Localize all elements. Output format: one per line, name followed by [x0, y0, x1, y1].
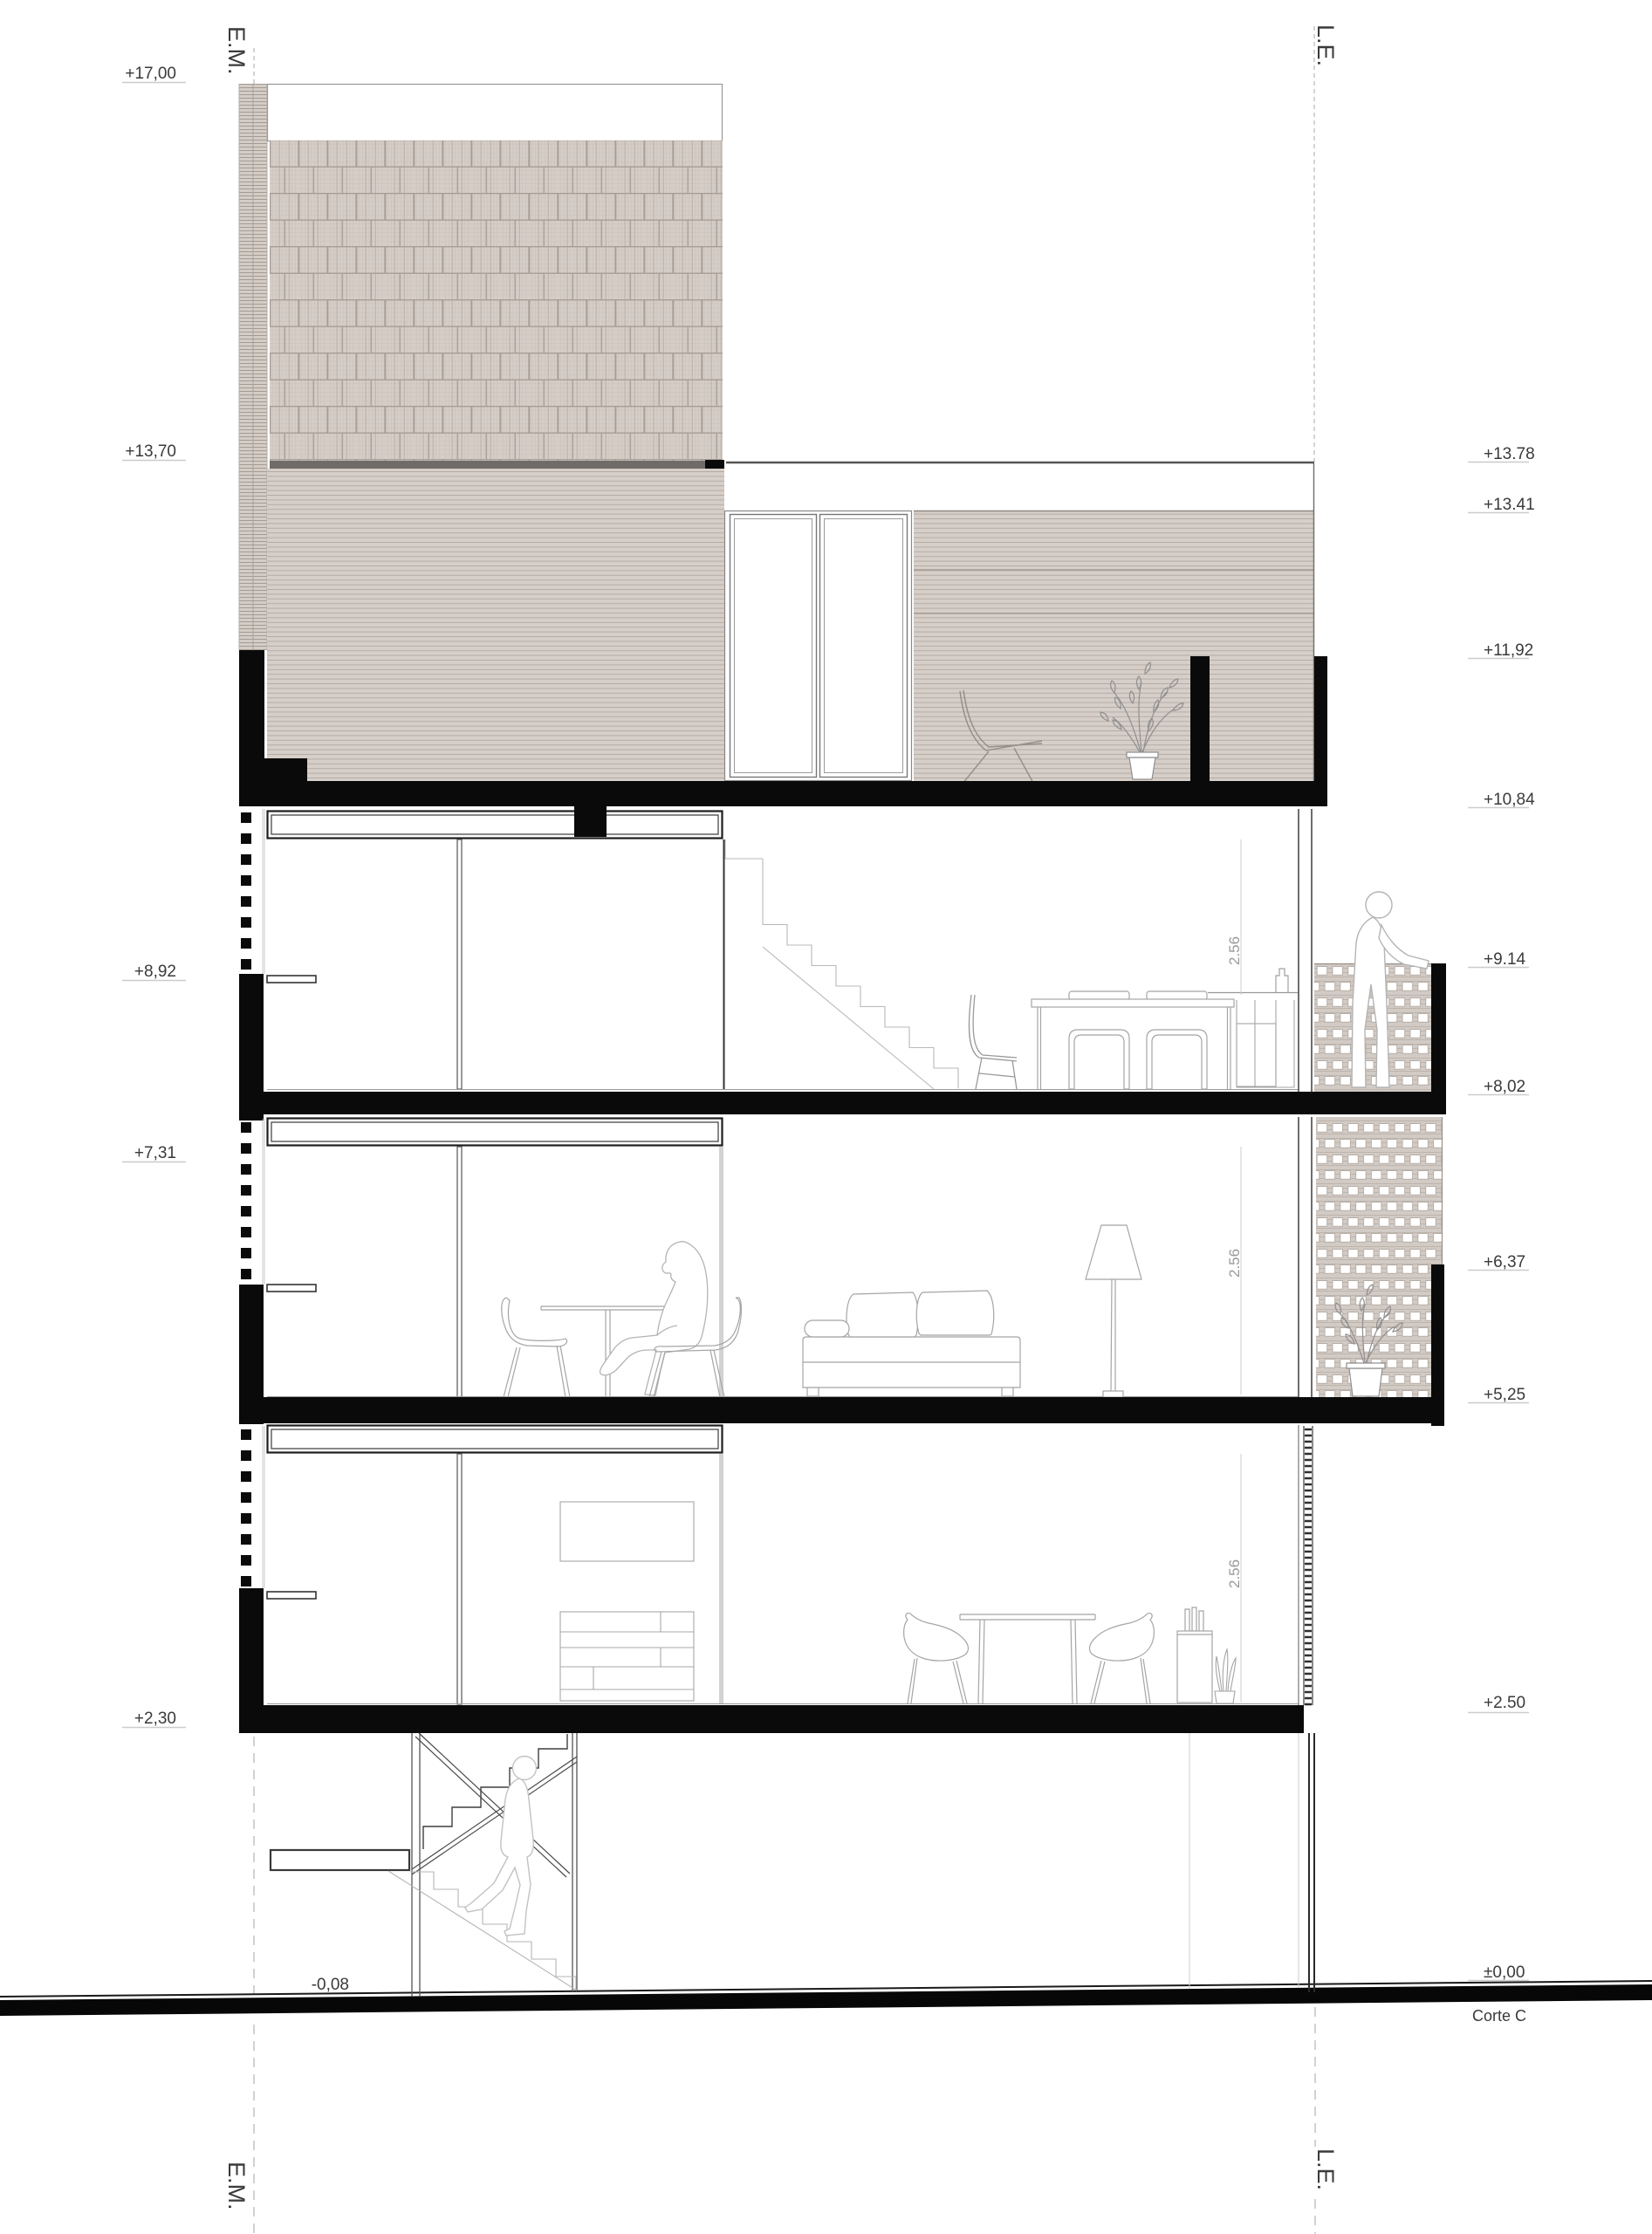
svg-text:+8,92: +8,92 [134, 963, 176, 981]
svg-text:+5,25: +5,25 [1484, 1386, 1525, 1404]
svg-text:+8,02: +8,02 [1484, 1078, 1525, 1096]
svg-text:+11,92: +11,92 [1484, 641, 1533, 660]
svg-text:2.56: 2.56 [1226, 1249, 1243, 1278]
svg-text:E.M.: E.M. [223, 2162, 250, 2210]
svg-text:+2.50: +2.50 [1484, 1694, 1525, 1712]
svg-text:±0,00: ±0,00 [1484, 1963, 1525, 1982]
svg-text:+9.14: +9.14 [1484, 950, 1526, 969]
svg-text:Corte C: Corte C [1472, 2007, 1526, 2025]
svg-text:+7,31: +7,31 [134, 1144, 176, 1162]
svg-text:+13,70: +13,70 [125, 442, 176, 461]
svg-text:-0,08: -0,08 [312, 1976, 349, 1994]
svg-text:+2,30: +2,30 [134, 1710, 176, 1728]
svg-text:+13.78: +13.78 [1484, 445, 1535, 463]
svg-text:+6,37: +6,37 [1484, 1253, 1525, 1271]
svg-text:+17,00: +17,00 [125, 65, 176, 83]
svg-text:+13.41: +13.41 [1484, 496, 1535, 514]
svg-text:2.56: 2.56 [1226, 936, 1243, 965]
svg-text:2.56: 2.56 [1226, 1559, 1243, 1588]
svg-text:L.E.: L.E. [1313, 24, 1339, 66]
svg-text:+10,84: +10,84 [1484, 791, 1535, 809]
svg-text:L.E.: L.E. [1313, 2148, 1339, 2190]
svg-text:E.M.: E.M. [223, 26, 250, 75]
